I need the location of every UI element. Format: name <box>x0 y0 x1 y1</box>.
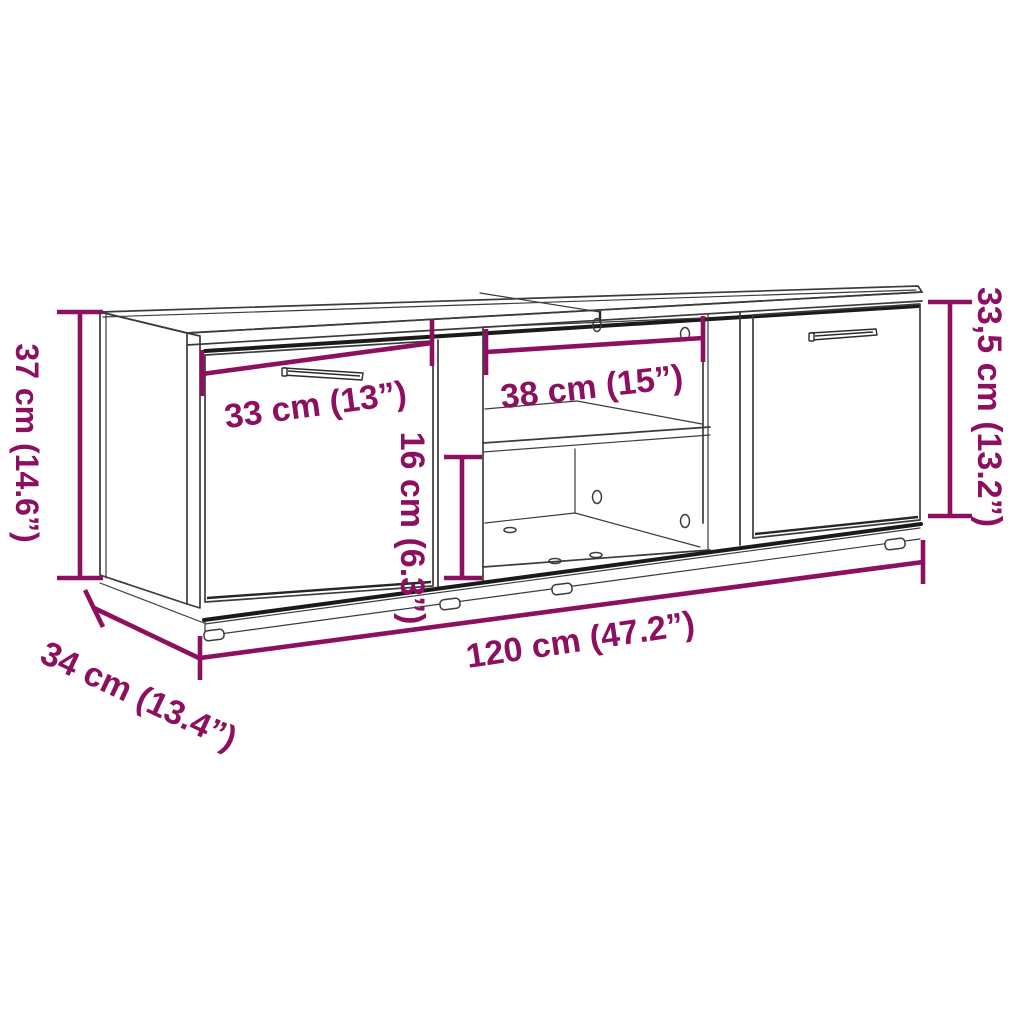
cabinet-foot <box>203 629 224 641</box>
dimension-side-height: 37 cm (14.6”) <box>9 312 103 578</box>
cabinet-foot <box>884 538 905 550</box>
diagram-canvas: 37 cm (14.6”) 33 cm (13”) 38 cm (15”) 16… <box>0 0 1024 1024</box>
furniture-dimension-diagram: 37 cm (14.6”) 33 cm (13”) 38 cm (15”) 16… <box>0 0 1024 1024</box>
dimension-label-shelf-width: 38 cm (15”) <box>499 358 685 417</box>
dimension-label-side-height: 37 cm (14.6”) <box>9 343 45 542</box>
dimension-label-total-width: 120 cm (47.2”) <box>464 604 698 676</box>
cabinet-drawing <box>100 286 922 641</box>
dimension-depth: 34 cm (13.4”) <box>35 590 243 758</box>
dimension-label-lower-compartment-height: 16 cm (6.3”) <box>393 432 431 625</box>
dimension-label-left-door-width: 33 cm (13”) <box>222 374 409 436</box>
dimension-label-door-height: 33,5 cm (13.2”) <box>970 287 1008 527</box>
cabinet-foot <box>551 583 572 595</box>
dimension-door-height: 33,5 cm (13.2”) <box>928 287 1008 527</box>
shelf-pin-holes <box>504 319 690 564</box>
left-side-panel <box>100 312 204 623</box>
dimension-label-depth: 34 cm (13.4”) <box>35 634 243 758</box>
right-door-handle <box>809 329 877 341</box>
cabinet-foot <box>439 598 460 610</box>
open-shelf-section <box>438 313 740 588</box>
left-door-handle <box>282 368 363 380</box>
lower-compartment <box>483 449 710 567</box>
right-door <box>753 304 920 538</box>
